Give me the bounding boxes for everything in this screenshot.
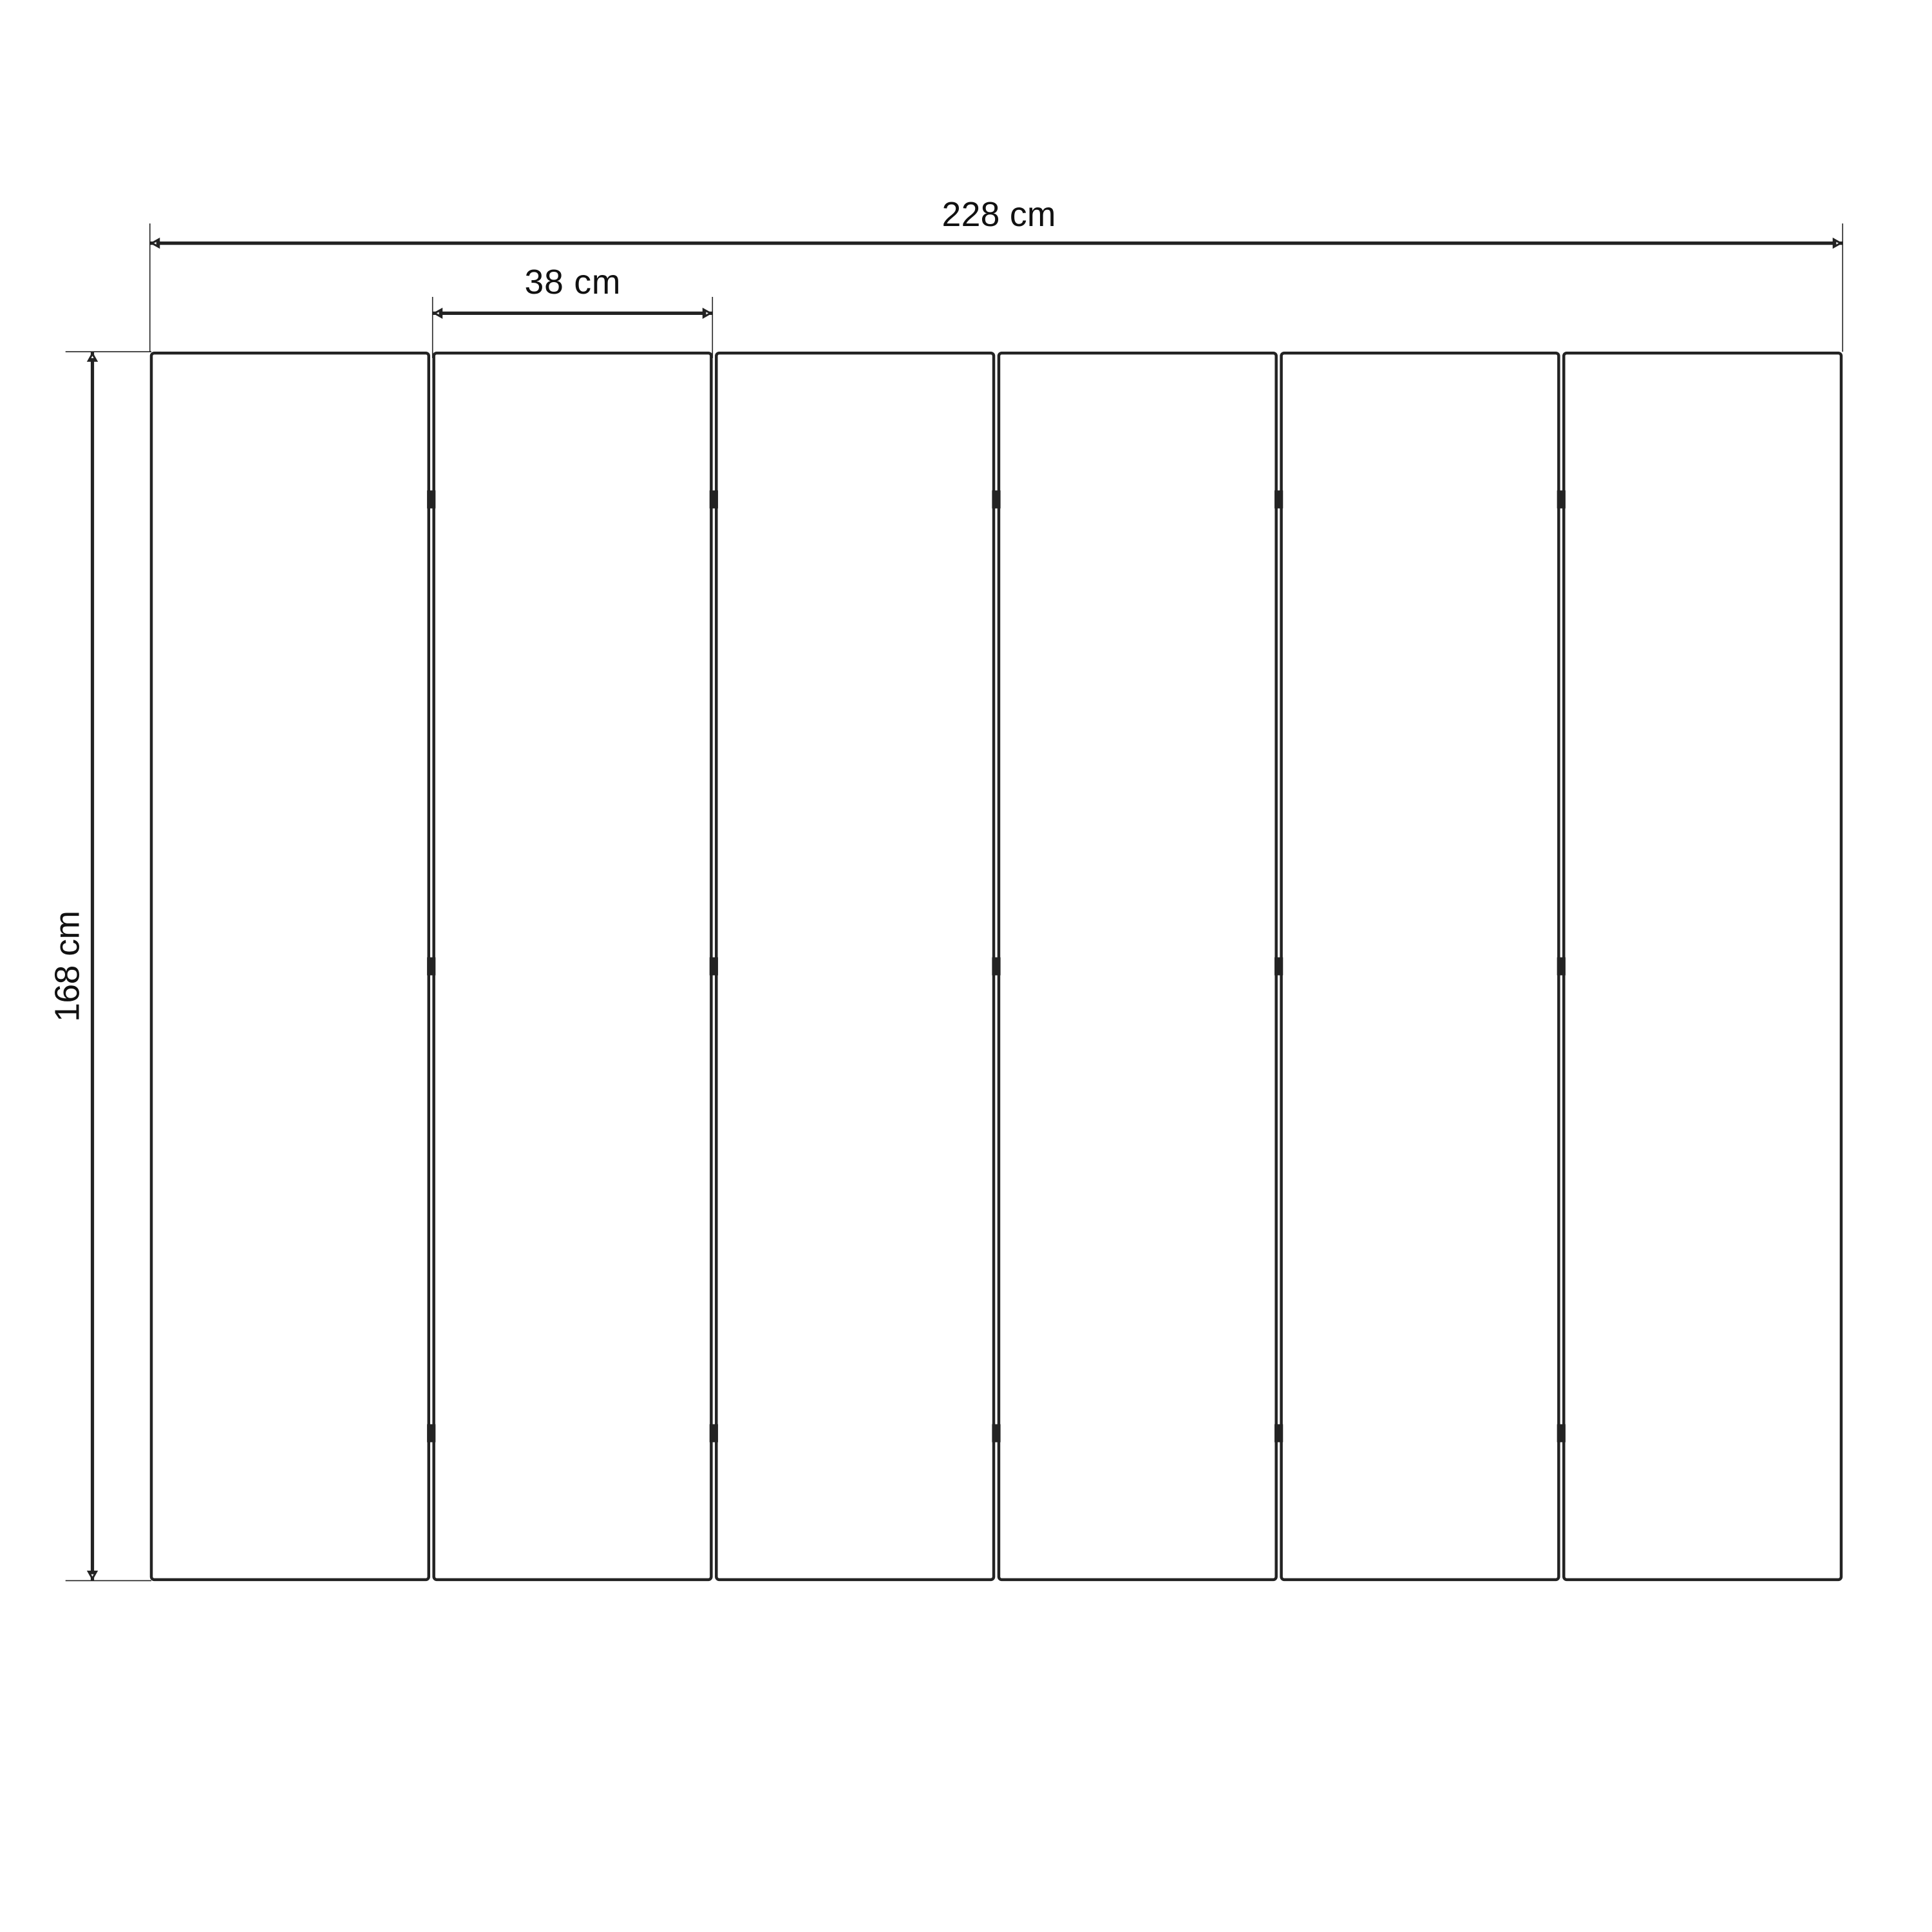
svg-text:38 cm: 38 cm (525, 263, 621, 301)
svg-text:228 cm: 228 cm (942, 196, 1056, 234)
svg-text:168 cm: 168 cm (49, 911, 87, 1022)
